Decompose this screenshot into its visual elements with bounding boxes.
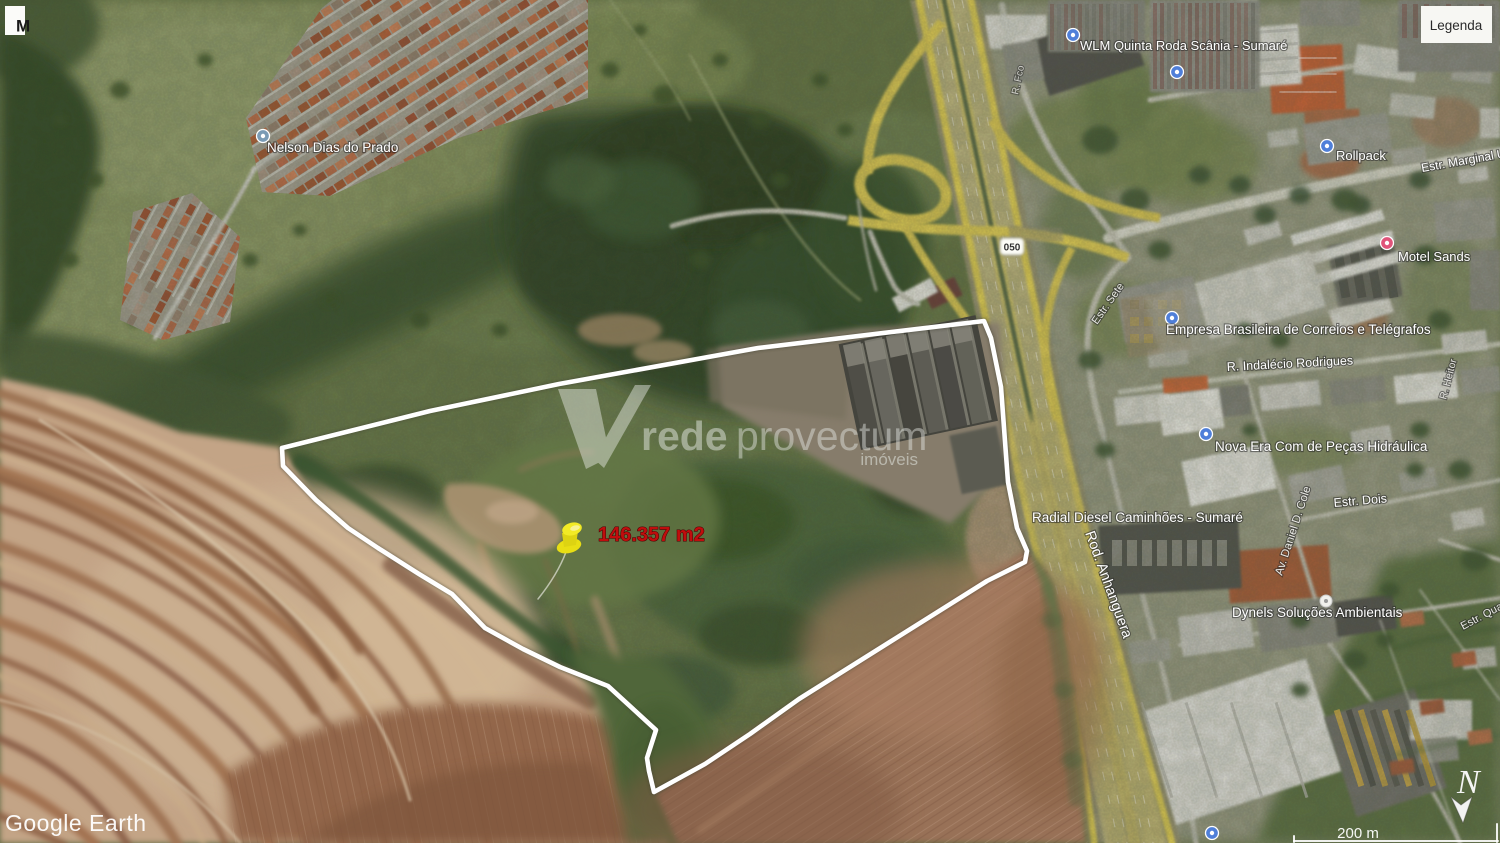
svg-text:Google Earth: Google Earth bbox=[5, 810, 147, 836]
svg-text:N: N bbox=[1456, 764, 1482, 801]
svg-text:Legenda: Legenda bbox=[1430, 18, 1483, 33]
svg-text:Rollpack: Rollpack bbox=[1336, 148, 1386, 163]
svg-text:050: 050 bbox=[1004, 243, 1021, 254]
svg-text:146.357 m2: 146.357 m2 bbox=[598, 524, 705, 546]
svg-text:WLM Quinta Roda Scânia - Sumar: WLM Quinta Roda Scânia - Sumaré bbox=[1080, 38, 1287, 53]
svg-text:Empresa Brasileira de Correios: Empresa Brasileira de Correios e Telégra… bbox=[1166, 322, 1431, 337]
svg-text:rede: rede bbox=[641, 413, 728, 459]
svg-text:Nova Era Com de Peças Hidráuli: Nova Era Com de Peças Hidráulica bbox=[1215, 439, 1428, 454]
svg-text:Radial Diesel Caminhões - Suma: Radial Diesel Caminhões - Sumaré bbox=[1032, 510, 1243, 525]
svg-text:Motel Sands: Motel Sands bbox=[1398, 249, 1471, 264]
svg-text:Dynels Soluções Ambientais: Dynels Soluções Ambientais bbox=[1232, 605, 1403, 620]
svg-text:M: M bbox=[16, 17, 30, 36]
svg-text:imóveis: imóveis bbox=[860, 450, 918, 469]
svg-text:200 m: 200 m bbox=[1337, 825, 1379, 842]
svg-text:Nelson Dias do Prado: Nelson Dias do Prado bbox=[267, 140, 398, 155]
